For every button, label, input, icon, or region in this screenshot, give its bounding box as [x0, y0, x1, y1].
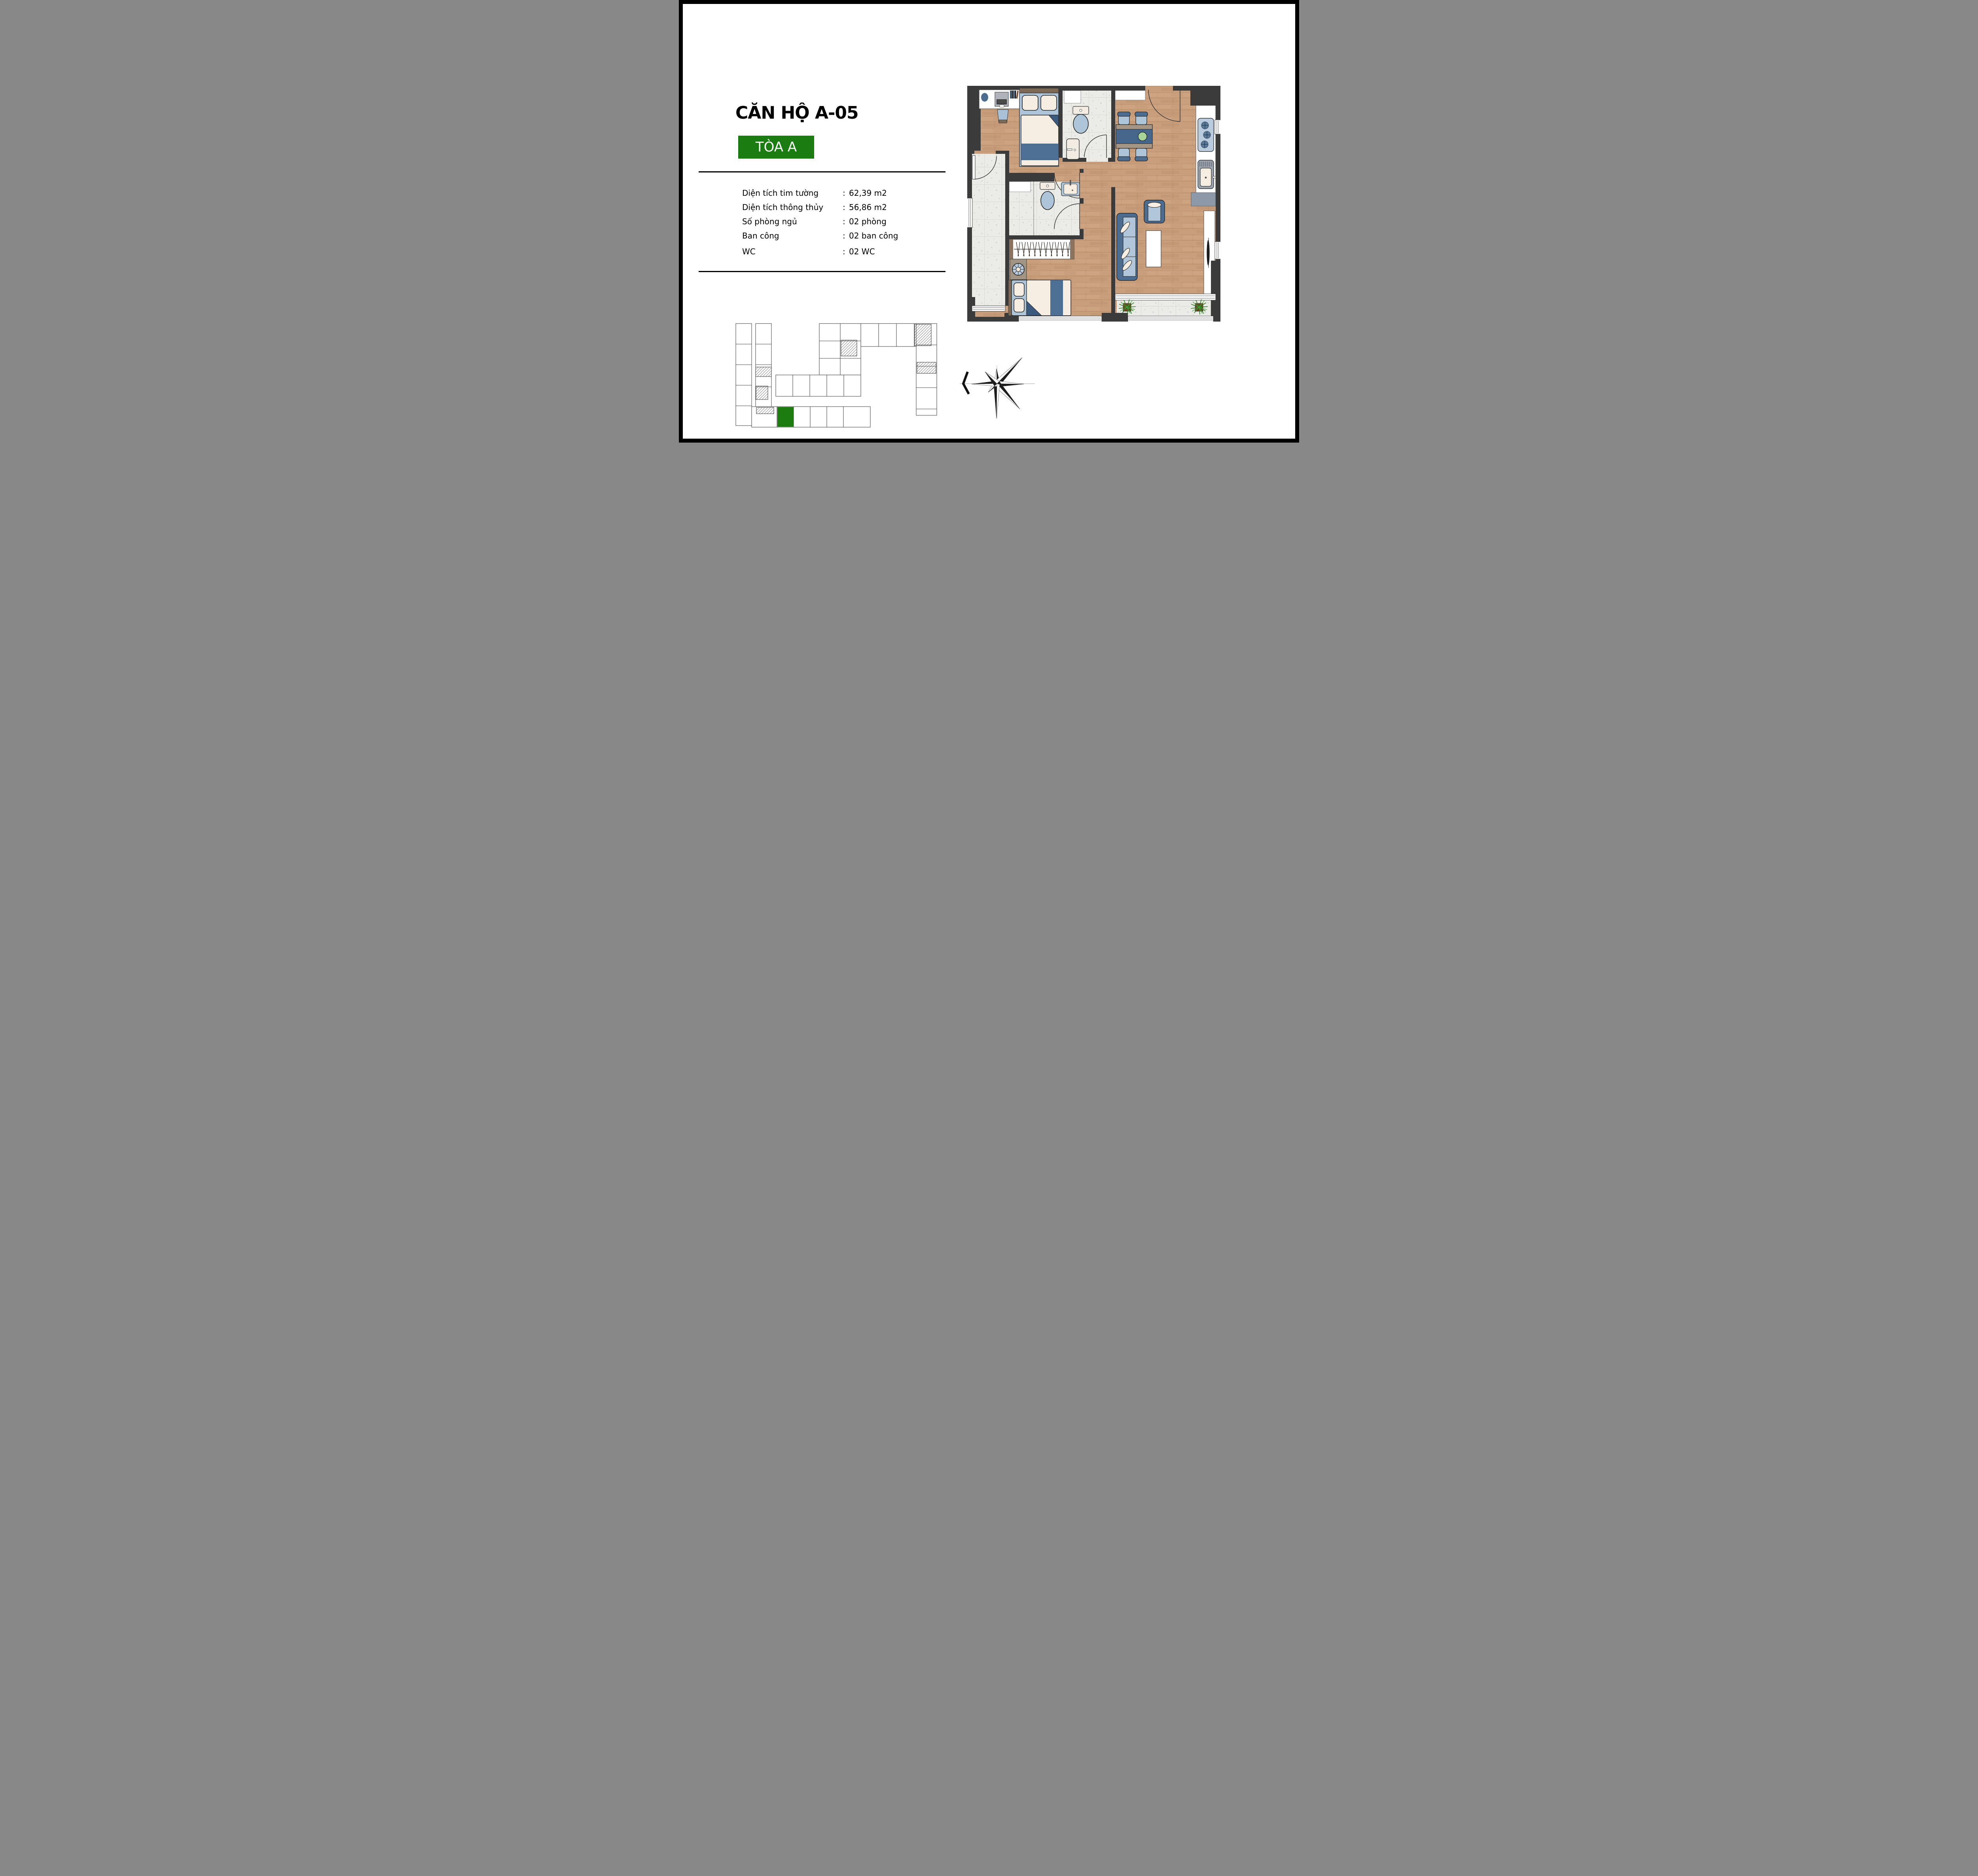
- spec-row-bedrooms: Số phòng ngủ : 02 phòng: [742, 214, 948, 229]
- armchair-icon: [1144, 200, 1165, 223]
- dining-table-icon: [1116, 125, 1152, 148]
- books-icon: [1010, 91, 1019, 98]
- spec-value: 56,86 m2: [849, 203, 887, 212]
- fan-icon: [1012, 263, 1024, 275]
- spec-value: 62,39 m2: [849, 188, 887, 198]
- keyplan-elevator-core: [756, 407, 774, 414]
- apartment-floor-plan: [967, 80, 1220, 322]
- keyplan-left-wing: [736, 324, 752, 426]
- single-bed-icon: [1008, 280, 1071, 316]
- sofa-icon: [1117, 213, 1137, 280]
- spec-separator: :: [843, 247, 849, 256]
- spec-label: WC: [742, 247, 843, 256]
- divider-bottom: [699, 271, 945, 272]
- side-balcony-floor: [972, 154, 1005, 306]
- toilet-icon: [1073, 106, 1089, 133]
- keyplan-stair-core: [756, 367, 771, 377]
- tower-badge: TÒA A: [738, 136, 814, 159]
- spec-separator: :: [843, 231, 849, 240]
- keyplan-stair-core: [917, 362, 936, 373]
- wardrobe-hangers-icon: [1009, 239, 1074, 259]
- cabinet: [1191, 193, 1216, 206]
- stool-icon: [997, 110, 1008, 123]
- balcony-door-leaf: [972, 155, 975, 179]
- gas-stove-icon: [1198, 118, 1214, 151]
- spec-label: Diện tích thông thủy: [742, 203, 843, 212]
- spec-label: Ban công: [742, 231, 843, 240]
- coffee-table: [1146, 231, 1161, 267]
- compass-star-icon: [956, 345, 1039, 424]
- keyplan-mid-wing: [776, 375, 861, 396]
- keyplan-stair-core: [841, 340, 857, 356]
- bathroom-niche: [1009, 182, 1031, 192]
- divider-top: [699, 171, 945, 172]
- building-key-plan: [714, 320, 939, 433]
- floor-plan-sheet: CĂN HỘ A-05 TÒA A Diện tích tim tường : …: [679, 0, 1299, 443]
- spec-separator: :: [843, 217, 849, 226]
- spec-list: Diện tích tim tường : 62,39 m2 Diện tích…: [742, 186, 948, 259]
- wash-basin-icon: [1061, 180, 1080, 196]
- desk-laptop-icon: [995, 92, 1008, 107]
- spec-row-wc: WC : 02 WC: [742, 244, 948, 259]
- double-bed-icon: [1019, 88, 1059, 167]
- spec-value: 02 phòng: [849, 217, 887, 226]
- spec-row-area-net: Diện tích thông thủy : 56,86 m2: [742, 200, 948, 214]
- spec-row-area-gross: Diện tích tim tường : 62,39 m2: [742, 186, 948, 200]
- spec-label: Diện tích tim tường: [742, 188, 843, 198]
- chevron-west-icon: [963, 372, 969, 394]
- entry-closet: [1115, 90, 1145, 100]
- spec-label: Số phòng ngủ: [742, 217, 843, 226]
- spec-row-balconies: Ban công : 02 ban công: [742, 229, 948, 243]
- fan-cabinet: [1010, 259, 1027, 280]
- page-title: CĂN HỘ A-05: [735, 103, 858, 123]
- spec-value: 02 WC: [849, 247, 875, 256]
- plate: [1138, 132, 1147, 141]
- desk-plate: [981, 93, 988, 102]
- toilet-icon: [1040, 182, 1055, 210]
- spec-value: 02 ban công: [849, 231, 898, 240]
- spec-separator: :: [843, 203, 849, 212]
- keyplan-elevator-core: [915, 324, 931, 346]
- wash-basin-icon: [1067, 139, 1079, 159]
- keyplan-elevator-core: [756, 386, 768, 399]
- keyplan-highlighted-unit: [777, 407, 794, 427]
- bathroom-niche: [1064, 91, 1081, 103]
- spec-separator: :: [843, 188, 849, 198]
